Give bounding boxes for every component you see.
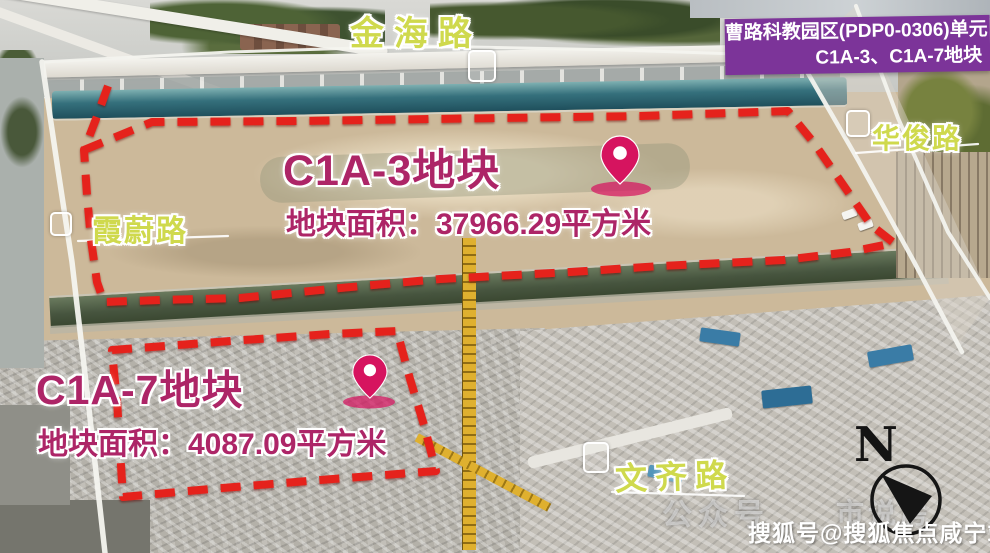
trees bbox=[0, 96, 44, 168]
watermark-sohu: 搜狐号@搜狐焦点咸宁站 bbox=[748, 514, 990, 548]
banner-line2: C1A-3、C1A-7地块 bbox=[725, 43, 982, 73]
signpost-icon bbox=[846, 110, 870, 137]
bare-trees bbox=[896, 152, 990, 278]
road-label-jinhai: 金海路 bbox=[350, 6, 482, 55]
parcel-c1a7-area: 地块面积：4087.09平方米 bbox=[38, 419, 386, 463]
parcel-c1a3-title: C1A-3地块 bbox=[283, 136, 500, 198]
road-label-huajun: 华俊路 bbox=[872, 117, 962, 157]
signpost-icon bbox=[583, 442, 609, 473]
title-banner: 曹路科教园区(PDP0-0306)单元 C1A-3、C1A-7地块 bbox=[725, 15, 990, 75]
buildings bbox=[0, 500, 150, 553]
parcel-c1a7-title: C1A-7地块 bbox=[36, 356, 243, 416]
aerial-site-photo: 金海路 霞蔚路 华俊路 文齐路 C1A-3地块 地块面积：37966.29平方米… bbox=[0, 0, 990, 553]
road-label-xiawei: 霞蔚路 bbox=[92, 206, 188, 250]
banner-line1: 曹路科教园区(PDP0-0306)单元 bbox=[725, 17, 982, 47]
parcel-c1a3-area: 地块面积：37966.29平方米 bbox=[286, 199, 651, 243]
crane-icon bbox=[462, 238, 476, 550]
signpost-icon bbox=[50, 212, 72, 236]
